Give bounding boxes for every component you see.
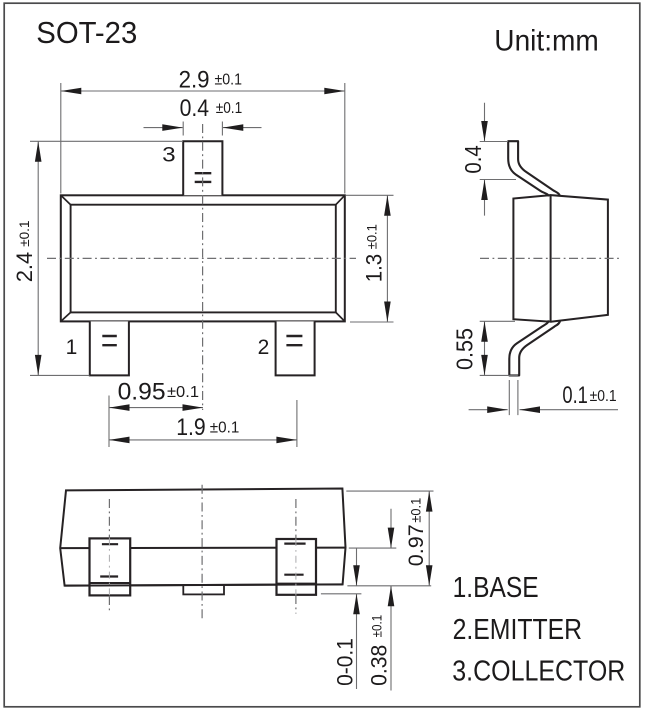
svg-text:Unit:mm: Unit:mm xyxy=(494,24,599,57)
svg-text:±0.1: ±0.1 xyxy=(210,419,240,436)
svg-text:0.4: 0.4 xyxy=(460,145,486,174)
svg-text:2: 2 xyxy=(258,336,270,359)
svg-text:3: 3 xyxy=(162,142,176,166)
svg-text:0.97: 0.97 xyxy=(404,524,428,566)
svg-text:0.38: 0.38 xyxy=(366,645,391,686)
svg-text:1.9: 1.9 xyxy=(176,414,206,441)
svg-text:±0.1: ±0.1 xyxy=(365,224,380,249)
svg-text:0.1: 0.1 xyxy=(562,382,588,409)
svg-text:1.3: 1.3 xyxy=(361,254,386,283)
svg-text:2.4: 2.4 xyxy=(12,252,37,283)
svg-text:±0.1: ±0.1 xyxy=(369,615,385,638)
svg-text:±0.1: ±0.1 xyxy=(215,72,243,89)
svg-text:±0.1: ±0.1 xyxy=(216,100,243,117)
svg-text:1.BASE: 1.BASE xyxy=(453,572,539,604)
svg-text:SOT-23: SOT-23 xyxy=(36,16,137,50)
svg-text:1: 1 xyxy=(66,336,78,359)
svg-text:0.95: 0.95 xyxy=(118,379,166,406)
svg-text:2.EMITTER: 2.EMITTER xyxy=(453,614,582,646)
svg-text:±0.1: ±0.1 xyxy=(408,498,424,523)
svg-text:±0.1: ±0.1 xyxy=(167,384,199,401)
svg-text:0.4: 0.4 xyxy=(180,95,210,122)
svg-text:3.COLLECTOR: 3.COLLECTOR xyxy=(452,655,625,687)
svg-text:2.9: 2.9 xyxy=(179,66,210,93)
svg-text:0.55: 0.55 xyxy=(451,328,477,370)
svg-text:±0.1: ±0.1 xyxy=(590,388,617,405)
svg-text:±0.1: ±0.1 xyxy=(17,221,32,247)
svg-text:0-0.1: 0-0.1 xyxy=(333,638,358,686)
